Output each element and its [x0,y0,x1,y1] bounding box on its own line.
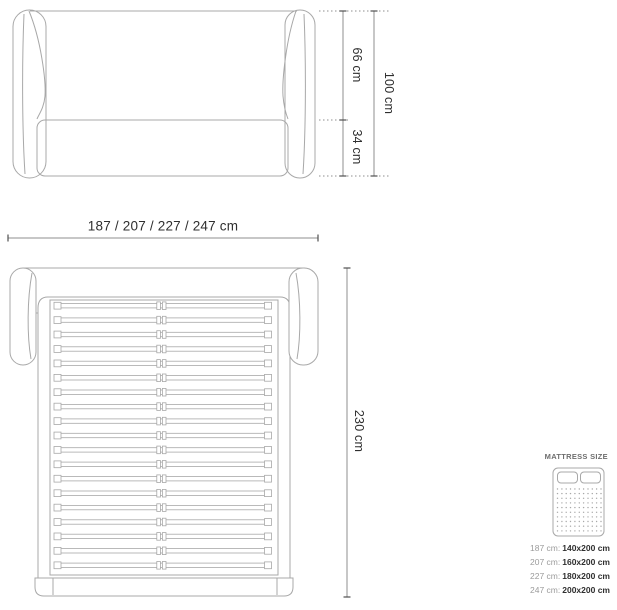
mattress-size-legend-title: MATTRESS SIZE [545,452,608,461]
mattress-icon [553,468,604,536]
length-dimension [344,268,351,597]
legend-row: 247 cm:200x200 cm [530,583,610,597]
bed-dimension-diagram: 66 cm 34 cm 100 cm 187 / 207 / 227 / 247… [0,0,617,610]
front-base [37,120,288,176]
mattress-size-value: 140x200 cm [562,543,610,553]
top-right-bolster [289,268,318,365]
top-footer-rail [35,578,293,596]
width-dimension [8,235,318,242]
top-view-drawing [10,268,318,596]
pillow-left [558,472,578,483]
dim-label-34: 34 cm [350,129,364,164]
pillow-right [581,472,601,483]
legend-row: 227 cm:180x200 cm [530,569,610,583]
mattress-dot-grid [557,488,602,531]
mattress-size-value: 200x200 cm [562,585,610,595]
dim-label-width: 187 / 207 / 227 / 247 cm [88,219,238,234]
technical-drawing-canvas [0,0,617,610]
legend-row: 207 cm:160x200 cm [530,555,610,569]
frame-width-label: 207 cm: [530,557,560,567]
mattress-size-legend: 187 cm:140x200 cm 207 cm:160x200 cm 227 … [530,541,610,597]
dim-label-66: 66 cm [350,47,364,82]
dim-label-230: 230 cm [352,410,366,452]
front-left-bolster [13,10,46,178]
mattress-size-value: 160x200 cm [562,557,610,567]
mattress-size-value: 180x200 cm [562,571,610,581]
frame-width-label: 247 cm: [530,585,560,595]
dim-label-100: 100 cm [382,72,396,114]
legend-row: 187 cm:140x200 cm [530,541,610,555]
frame-width-label: 187 cm: [530,543,560,553]
front-view-drawing [13,10,315,178]
top-left-bolster [10,268,36,365]
frame-width-label: 227 cm: [530,571,560,581]
